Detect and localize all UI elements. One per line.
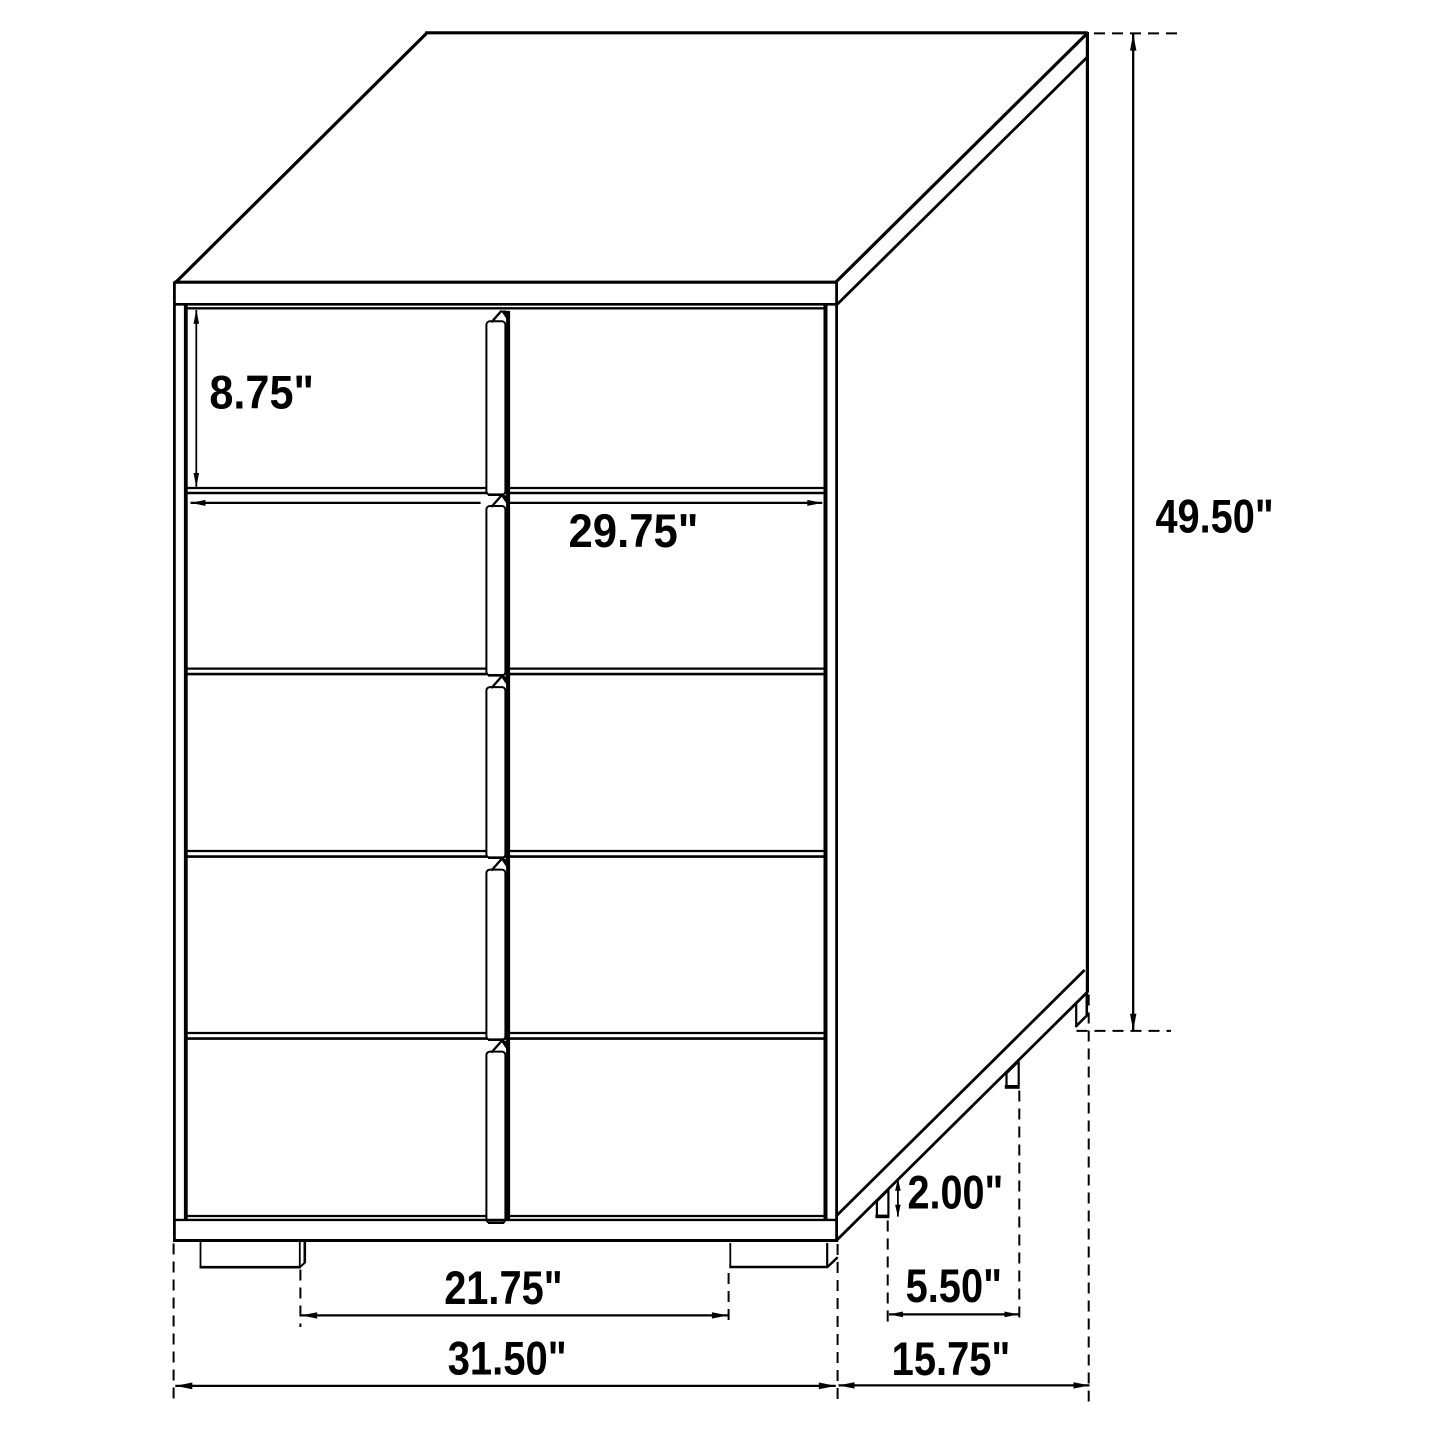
svg-text:31.50": 31.50" xyxy=(448,1332,567,1385)
svg-text:21.75": 21.75" xyxy=(444,1261,562,1314)
svg-text:5.50": 5.50" xyxy=(906,1259,1002,1312)
svg-text:15.75": 15.75" xyxy=(892,1332,1011,1385)
svg-text:8.75": 8.75" xyxy=(209,366,314,419)
svg-text:49.50": 49.50" xyxy=(1155,489,1273,542)
svg-text:2.00": 2.00" xyxy=(907,1166,1003,1219)
svg-text:29.75": 29.75" xyxy=(569,504,699,557)
